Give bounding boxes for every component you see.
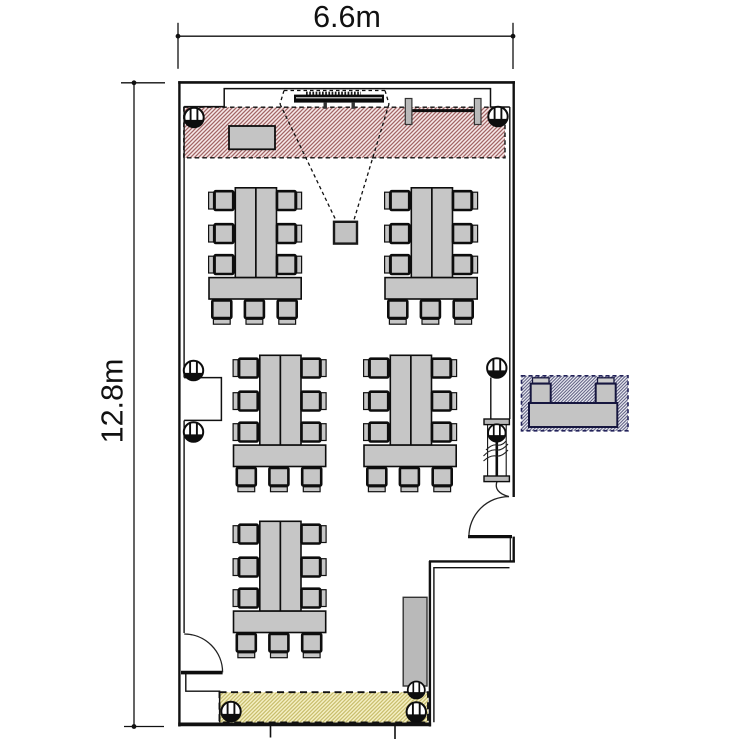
svg-text:12.8m: 12.8m	[96, 359, 130, 444]
svg-text:6.6m: 6.6m	[313, 0, 381, 34]
